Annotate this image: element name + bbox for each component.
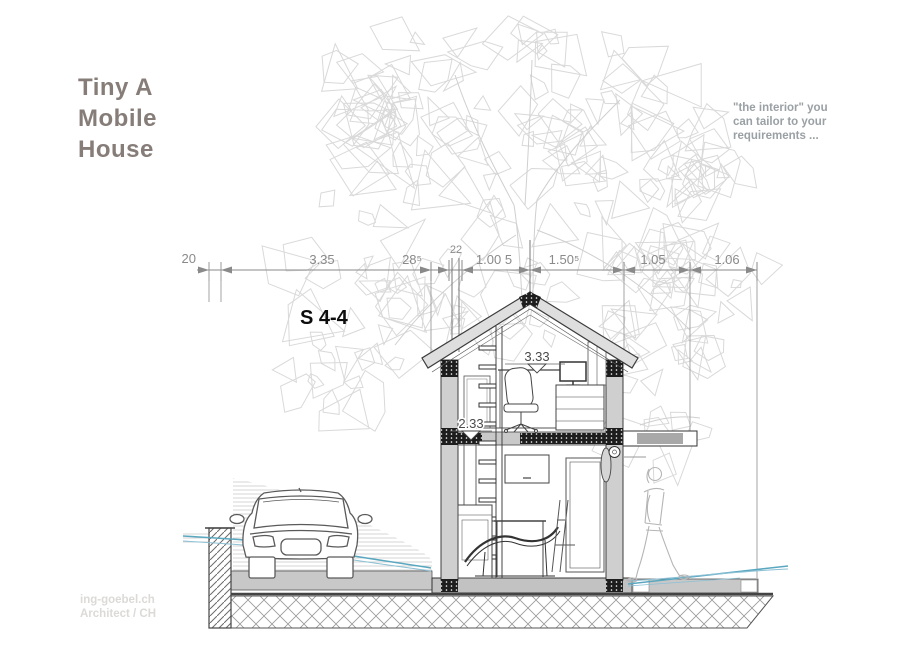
svg-text:3.33: 3.33	[524, 349, 549, 364]
dim-106: 1.06	[714, 252, 739, 267]
wall-block	[441, 579, 458, 592]
dim-285: 28⁵	[402, 252, 422, 267]
section-label: S 4-4	[300, 307, 349, 329]
left-wall	[441, 360, 458, 580]
architectural-drawing: Tiny A Mobile House "the interior" you c…	[0, 0, 900, 668]
car-mirror-right	[358, 515, 372, 524]
desk-cabinet	[556, 385, 604, 430]
computer-monitor	[560, 362, 586, 381]
section-drawing-canvas: Tiny A Mobile House "the interior" you c…	[0, 0, 900, 668]
car-headlight-right	[327, 536, 349, 548]
watermark-line2: Architect / CH	[80, 608, 156, 620]
dim-1505: 1.50⁵	[549, 252, 580, 267]
roof-left-slope	[422, 292, 530, 368]
page-title-line1: Tiny A	[78, 74, 153, 101]
window	[566, 458, 604, 572]
car-mirror-left	[230, 515, 244, 524]
dim-1005: 1.00 5	[476, 252, 512, 267]
window-inner	[570, 462, 600, 568]
person-figure	[627, 468, 689, 583]
person-head	[649, 468, 662, 481]
wall-vent	[609, 447, 620, 458]
car-wheel-left	[249, 557, 275, 578]
tagline-line1: "the interior" you	[733, 102, 828, 114]
slab-cap	[741, 580, 757, 592]
car-headlight-left	[253, 536, 275, 548]
dim-335: 3.35	[309, 252, 334, 267]
house-section	[422, 292, 697, 592]
svg-text:2.33: 2.33	[458, 416, 483, 431]
loft-floor-insulation	[520, 433, 606, 444]
wall-block	[441, 360, 458, 377]
tagline-line2: can tailor to your	[733, 116, 827, 128]
page-title-line3: House	[78, 136, 154, 163]
chair-backrest	[504, 367, 534, 409]
wall-block	[606, 428, 623, 445]
car-wheel-right	[327, 557, 353, 578]
wall-block	[441, 428, 458, 445]
canopy-fill	[637, 433, 683, 444]
wall-block	[606, 360, 623, 377]
ground-hatch	[213, 596, 773, 628]
tree-sketch	[262, 16, 782, 486]
dim-105: 1.05	[640, 252, 665, 267]
watermark-line1: ing-goebel.ch	[80, 594, 155, 606]
wall-block	[606, 579, 623, 592]
office-chair	[504, 367, 538, 433]
page-title-line2: Mobile	[78, 105, 157, 132]
dim-22: 22	[450, 244, 462, 256]
house-floor-slab	[432, 578, 632, 593]
person-leg-back	[628, 526, 649, 581]
tagline-line3: requirements ...	[733, 130, 819, 142]
wall-cabinet	[505, 455, 549, 483]
chair-seat	[504, 404, 538, 412]
dim-20: 20	[182, 251, 196, 266]
person-leg-front	[659, 527, 689, 578]
